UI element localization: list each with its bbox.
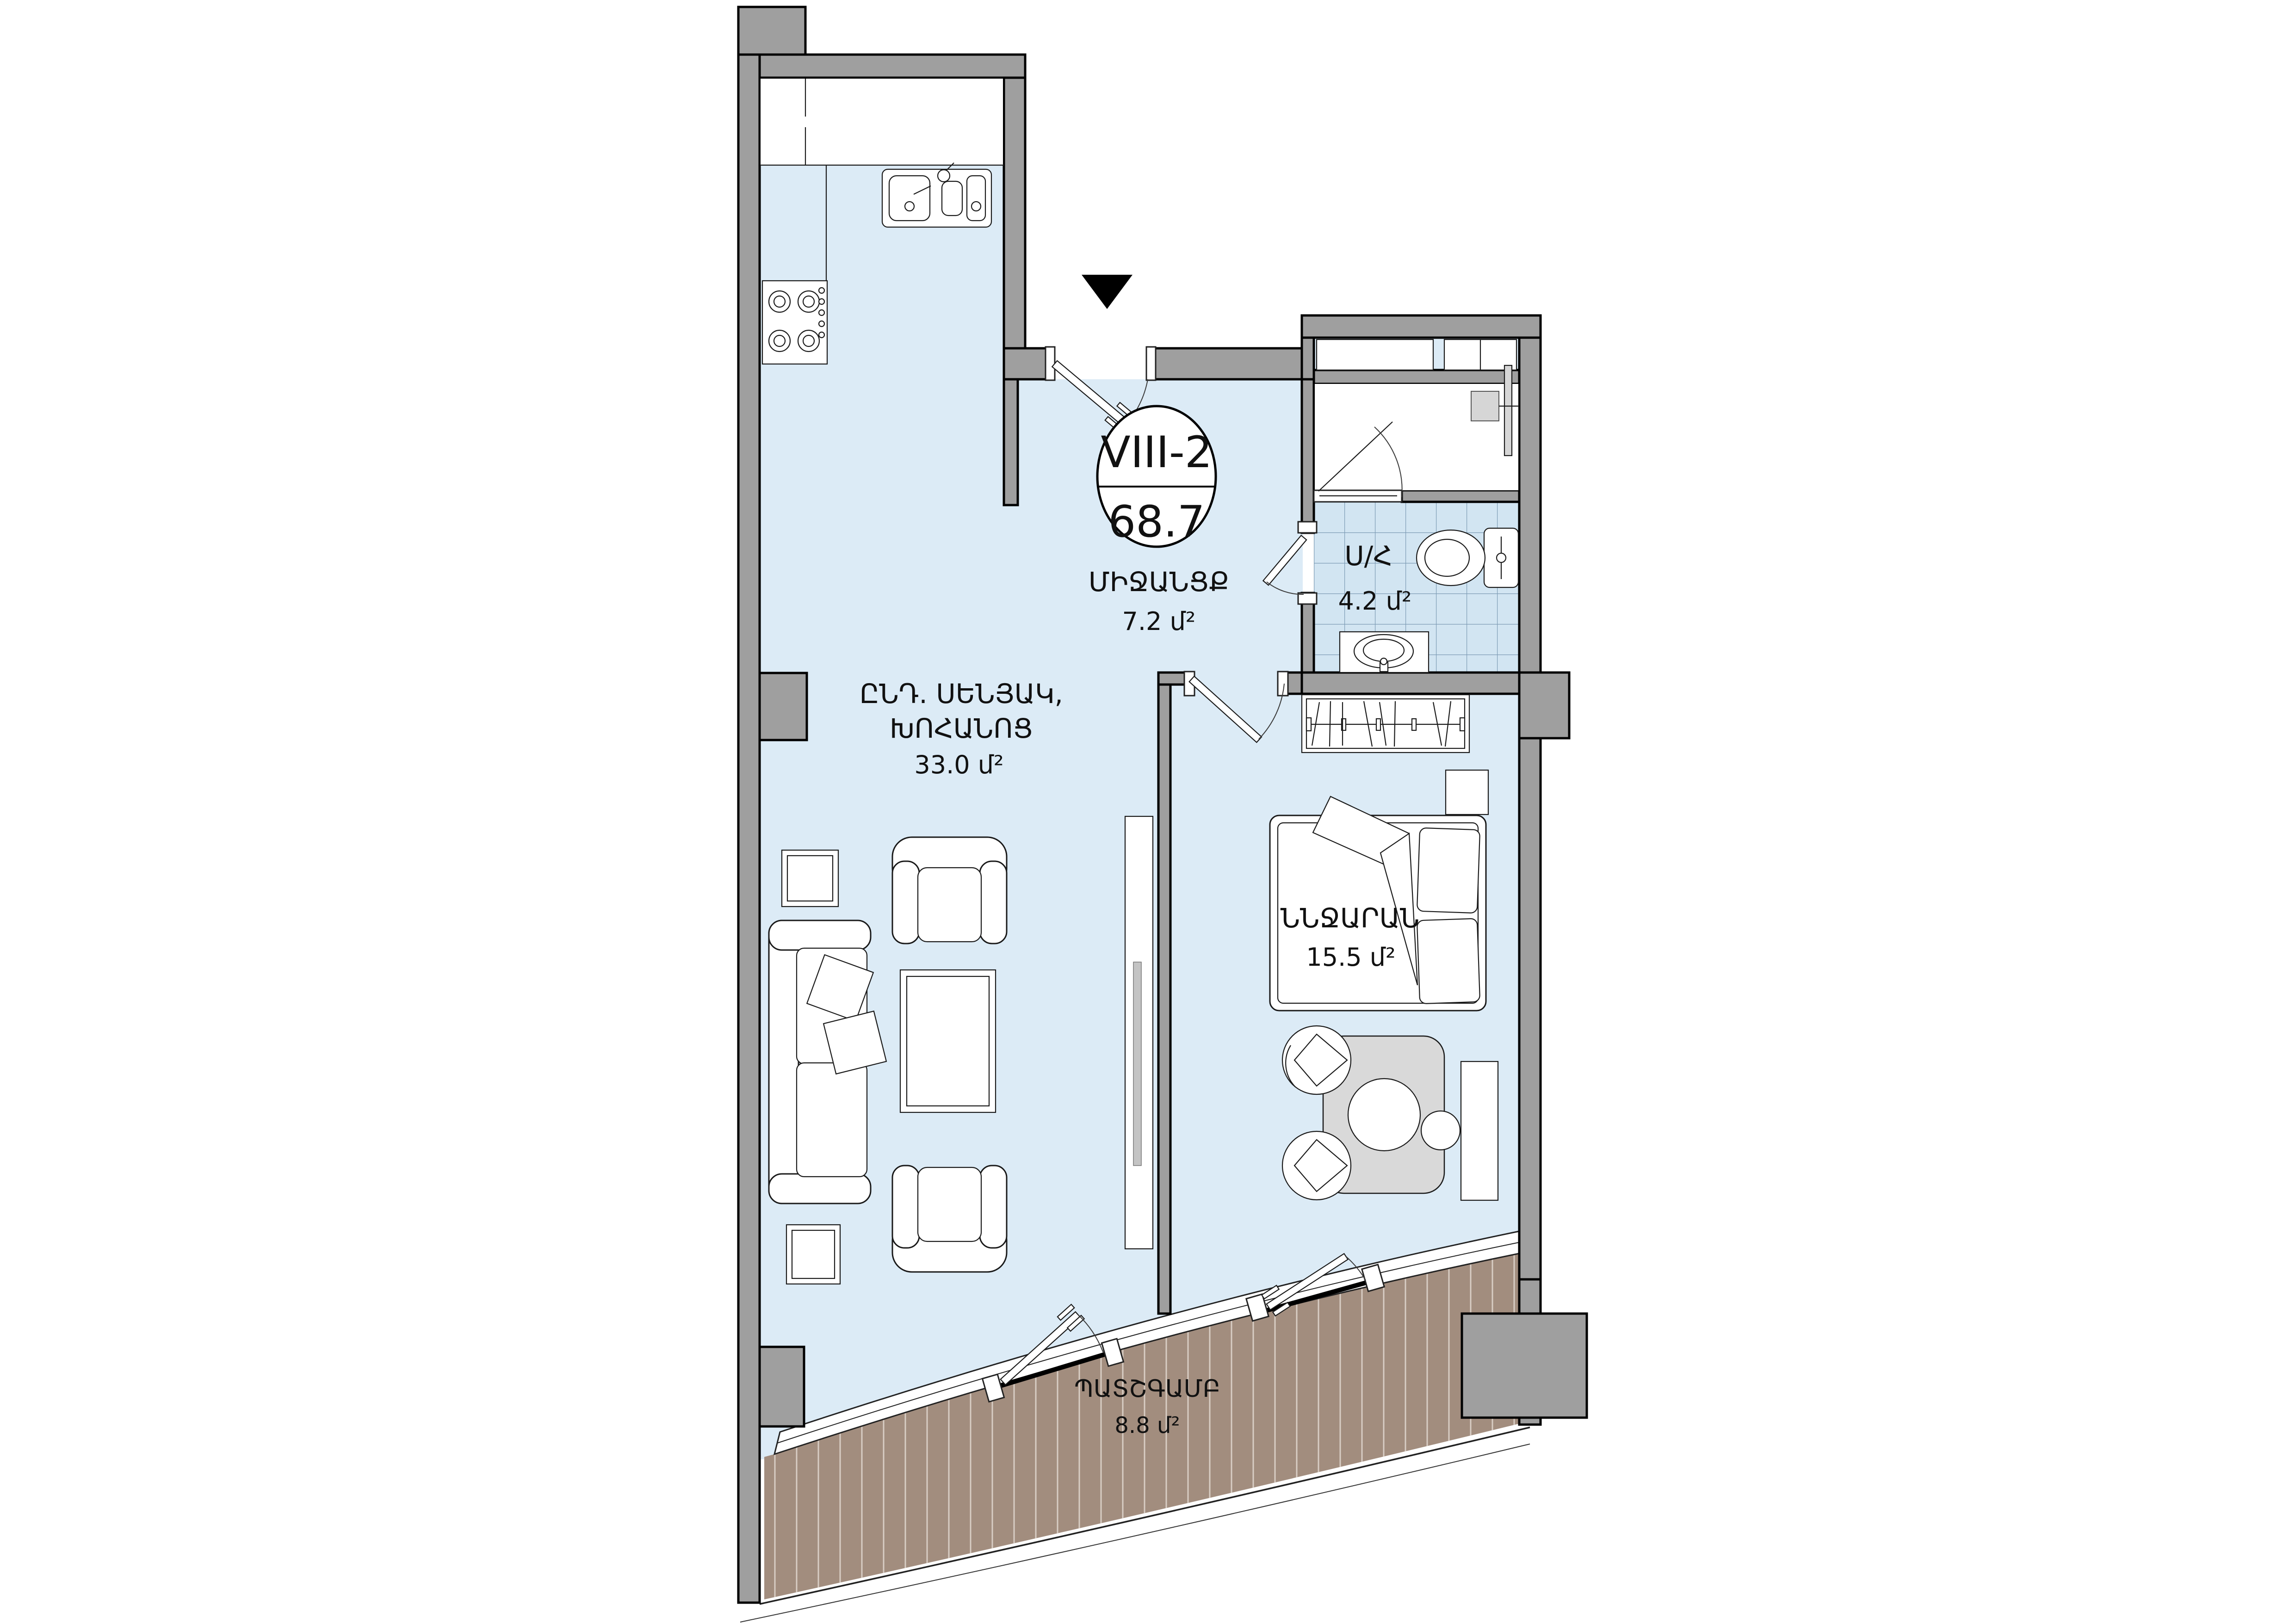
armchair-top bbox=[892, 837, 1007, 944]
duct-niche-1 bbox=[1317, 339, 1433, 370]
label-balcony-area: 8.8 մ² bbox=[1114, 1413, 1180, 1438]
label-bath: Ս/Հ bbox=[1344, 540, 1392, 572]
label-hallway: ՄԻՋԱՆՑՔ bbox=[1089, 566, 1229, 598]
kitchen-counter bbox=[761, 79, 1003, 165]
wall-right-mid bbox=[1519, 738, 1541, 1279]
wall-pier-left-a bbox=[760, 673, 807, 740]
wall-bath-bottom bbox=[1302, 673, 1519, 694]
chair-top bbox=[1282, 1026, 1351, 1094]
unit-badge: VIII-2 68.7 bbox=[1097, 406, 1216, 547]
end-table-1 bbox=[782, 850, 838, 907]
faucet bbox=[938, 170, 950, 182]
bathroom-sink bbox=[1340, 632, 1429, 673]
wall-top bbox=[738, 55, 1025, 78]
coffee-table bbox=[900, 970, 996, 1112]
wardrobe bbox=[1302, 695, 1469, 753]
wall-pier-bottom-right bbox=[1462, 1314, 1587, 1418]
label-hallway-area: 7.2 մ² bbox=[1122, 607, 1196, 636]
dresser bbox=[1446, 770, 1488, 815]
label-bedroom-area: 15.5 մ² bbox=[1306, 943, 1395, 972]
wall-pier-right bbox=[1519, 673, 1569, 738]
label-bedroom: ՆՆՋԱՐԱՆ bbox=[1281, 902, 1420, 934]
kitchen-stove bbox=[762, 281, 827, 364]
desk bbox=[1461, 1061, 1498, 1200]
label-living-2: ԽՈՀԱՆՈՑ bbox=[890, 713, 1033, 744]
kitchen-sink bbox=[882, 163, 991, 227]
badge-unit-number: VIII-2 bbox=[1101, 427, 1212, 478]
label-living-area: 33.0 մ² bbox=[914, 750, 1003, 779]
wall-partition bbox=[1158, 685, 1170, 1314]
floor-plan: VIII-2 68.7 ՄԻՋԱՆՑՔ 7.2 մ² Ս/Հ 4.2 մ² ԸՆ… bbox=[0, 0, 2296, 1623]
chair-bottom bbox=[1282, 1131, 1351, 1200]
wall-bath-divider-lower bbox=[1302, 593, 1314, 673]
armchair-bottom bbox=[892, 1166, 1007, 1272]
entrance-arrow-icon bbox=[1082, 275, 1133, 309]
wall-kitchen-corridor bbox=[1004, 78, 1025, 348]
wall-top-notch bbox=[738, 7, 805, 56]
badge-total-area: 68.7 bbox=[1108, 497, 1205, 547]
label-living-1: ԸՆԴ. ՍԵՆՅԱԿ, bbox=[860, 678, 1063, 710]
end-table-2 bbox=[786, 1225, 840, 1284]
label-balcony: ՊԱՏՇԳԱՄԲ bbox=[1074, 1375, 1220, 1403]
toilet bbox=[1417, 528, 1518, 587]
label-bath-area: 4.2 մ² bbox=[1338, 586, 1412, 616]
tv-unit bbox=[1125, 816, 1153, 1249]
wall-pier-left-b bbox=[760, 1347, 804, 1426]
wall-partition-stub bbox=[1158, 673, 1187, 685]
stool bbox=[1421, 1111, 1460, 1150]
wall-right-section-top bbox=[1302, 315, 1541, 338]
wall-right-upper bbox=[1519, 338, 1541, 673]
wall-bath-divider-upper bbox=[1302, 379, 1314, 533]
wall-corridor-top bbox=[1155, 348, 1314, 379]
wall-left bbox=[738, 55, 760, 1603]
